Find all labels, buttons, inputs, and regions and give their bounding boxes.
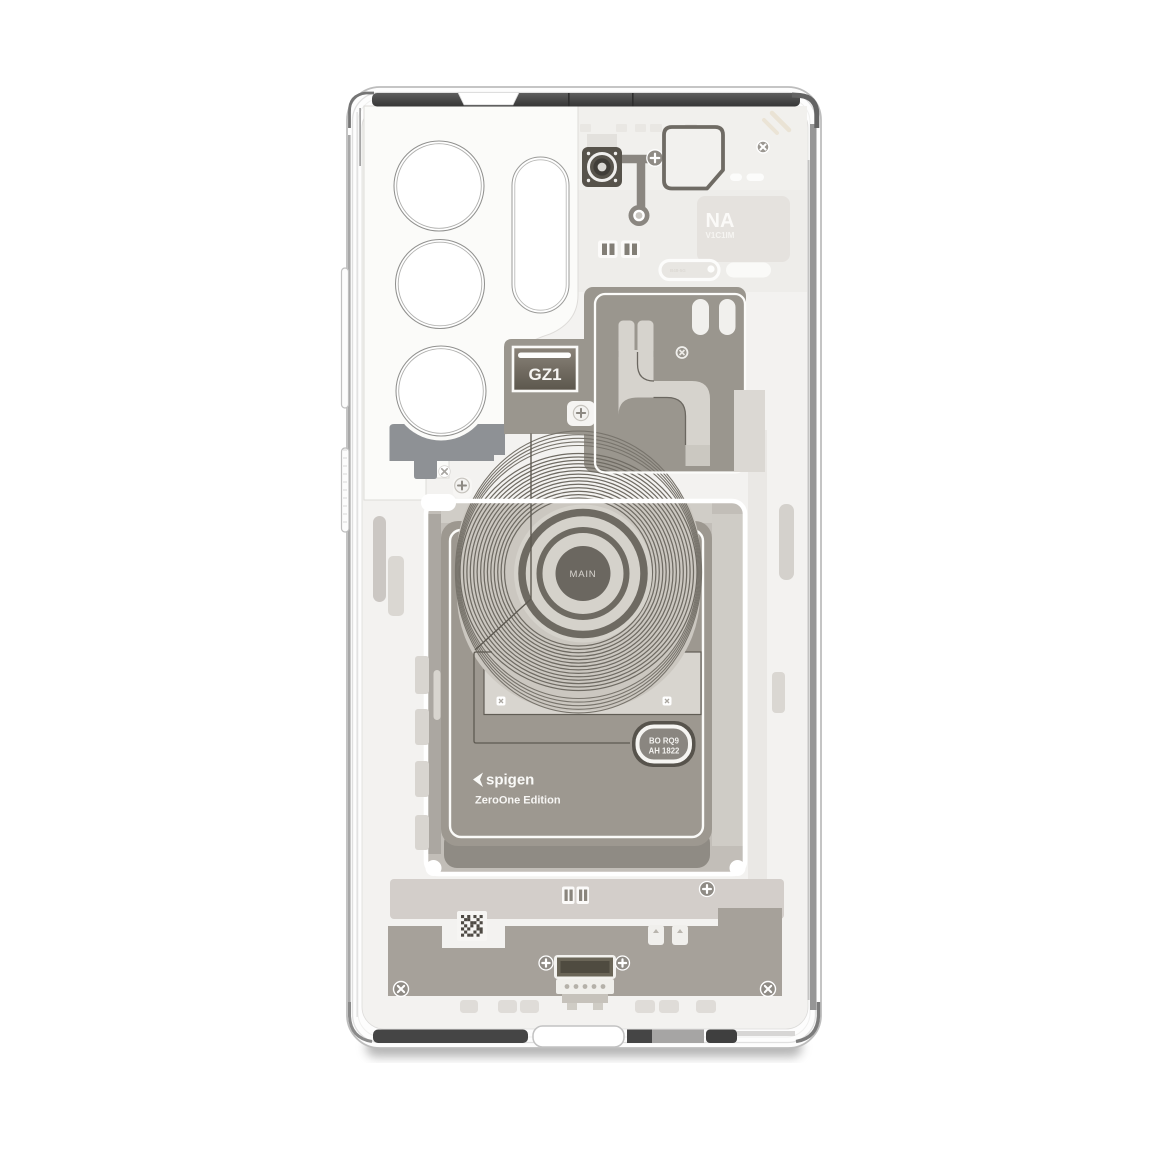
svg-text:B48-5G: B48-5G	[670, 268, 686, 273]
svg-text:GZ1: GZ1	[528, 365, 561, 384]
svg-text:MAIN: MAIN	[570, 569, 597, 580]
svg-text:BO RQ9: BO RQ9	[649, 737, 680, 746]
svg-text:V1C1IM: V1C1IM	[706, 231, 735, 240]
svg-text:ZeroOne Edition: ZeroOne Edition	[475, 795, 561, 807]
svg-text:NA: NA	[706, 210, 735, 232]
svg-text:spigen: spigen	[486, 772, 534, 789]
svg-text:AH 1822: AH 1822	[649, 747, 680, 756]
